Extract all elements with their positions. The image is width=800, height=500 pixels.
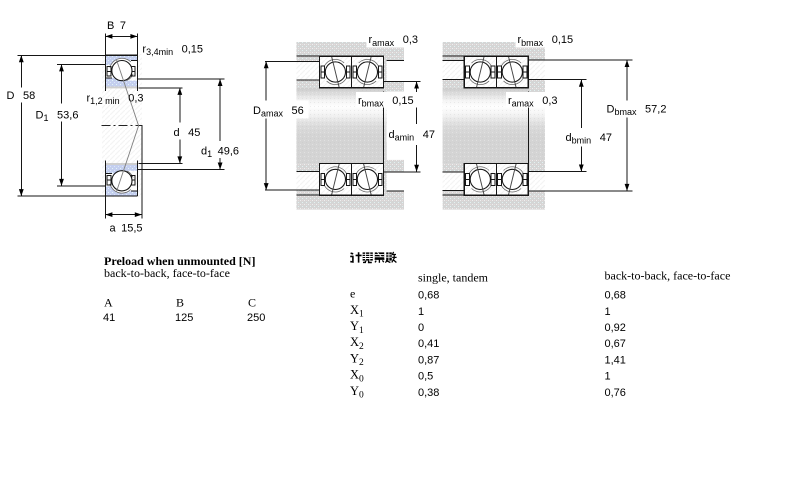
svg-text:d 45: d 45 [174,127,201,139]
svg-text:1: 1 [418,306,424,318]
svg-text:0,68: 0,68 [418,290,439,302]
svg-text:e: e [350,287,355,301]
svg-text:ramax 0,3: ramax 0,3 [369,34,419,48]
svg-text:B 7: B 7 [107,20,126,32]
svg-text:B: B [176,296,184,310]
svg-text:single, tandem: single, tandem [418,271,489,285]
svg-text:0,92: 0,92 [605,322,626,334]
svg-text:0,41: 0,41 [418,338,439,350]
svg-text:0: 0 [418,322,424,334]
svg-text:dbmin 47: dbmin 47 [566,132,612,146]
svg-text:back-to-back, face-to-face: back-to-back, face-to-face [605,269,731,283]
svg-text:0,67: 0,67 [605,338,626,350]
svg-text:0,38: 0,38 [418,387,439,399]
svg-text:0,76: 0,76 [605,387,626,399]
svg-text:1: 1 [605,306,611,318]
svg-text:C: C [248,296,256,310]
svg-text:back-to-back, face-to-face: back-to-back, face-to-face [104,266,230,280]
svg-text:r3,4min 0,15: r3,4min 0,15 [142,44,203,58]
svg-text:d1 49,6: d1 49,6 [201,146,239,160]
svg-text:250: 250 [247,312,265,324]
svg-text:D1 53,6: D1 53,6 [36,110,79,124]
svg-text:rbmax 0,15: rbmax 0,15 [518,34,574,48]
svg-text:X0: X0 [350,368,364,385]
svg-text:0,87: 0,87 [418,354,439,366]
svg-text:125: 125 [175,312,193,324]
svg-text:a 15,5: a 15,5 [110,223,143,235]
svg-text:Y1: Y1 [350,319,364,336]
svg-text:Y0: Y0 [350,384,364,401]
svg-text:1,41: 1,41 [605,354,626,366]
svg-text:D 58: D 58 [7,90,36,102]
svg-text:A: A [104,296,113,310]
svg-text:0,68: 0,68 [605,290,626,302]
svg-text:0,5: 0,5 [418,371,433,383]
svg-text:X2: X2 [350,335,364,352]
svg-text:Dbmax 57,2: Dbmax 57,2 [607,104,667,118]
svg-text:1: 1 [605,371,611,383]
svg-text:X1: X1 [350,303,364,320]
svg-text:41: 41 [103,312,115,324]
svg-text:Y2: Y2 [350,351,364,368]
